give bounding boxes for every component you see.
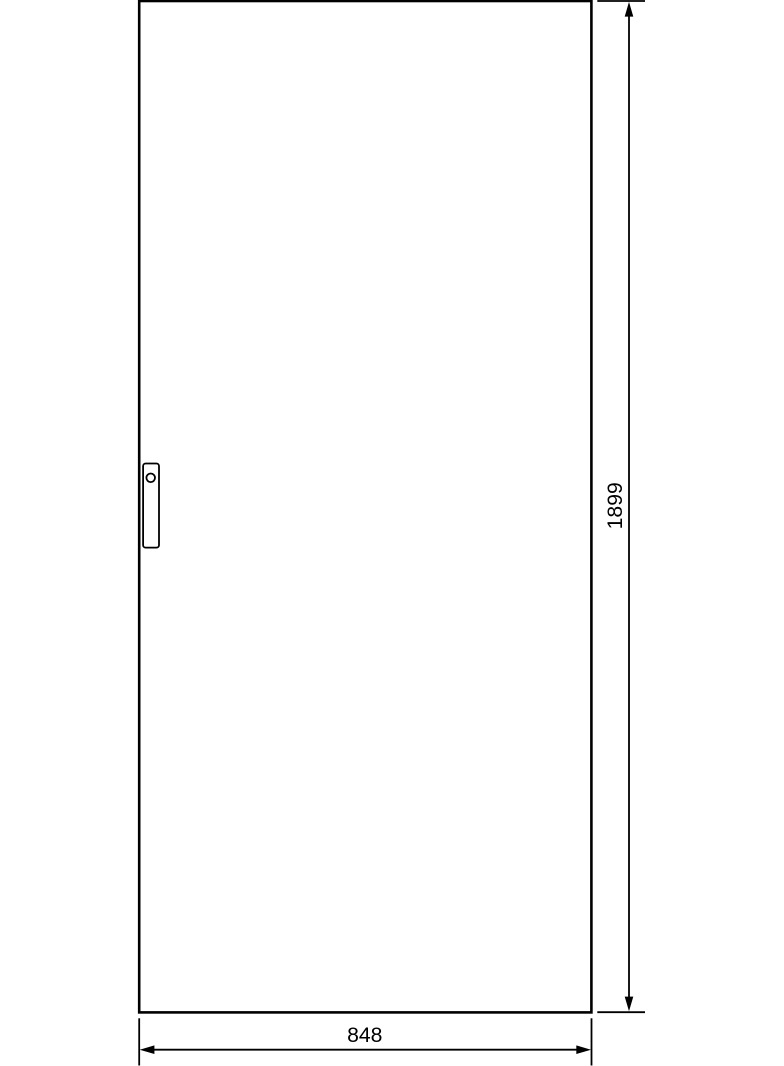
svg-text:1899: 1899 (604, 482, 627, 529)
svg-text:848: 848 (347, 1024, 382, 1047)
